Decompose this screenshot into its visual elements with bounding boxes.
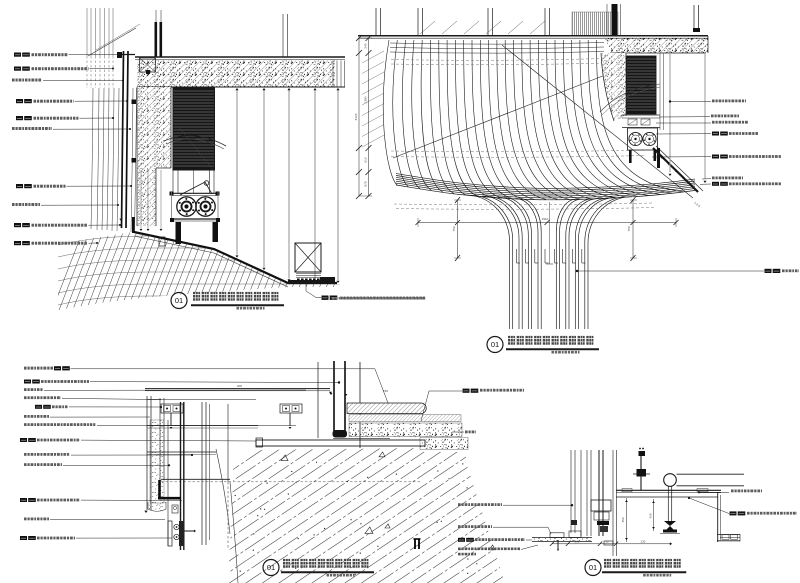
svg-text:3122: 3122 <box>354 113 358 120</box>
svg-text:150: 150 <box>383 389 388 393</box>
svg-text:750: 750 <box>627 226 631 231</box>
svg-text:240: 240 <box>364 43 368 48</box>
svg-text:1510: 1510 <box>542 217 549 221</box>
svg-text:1380: 1380 <box>364 96 368 103</box>
svg-text:200: 200 <box>237 384 242 388</box>
svg-text:01: 01 <box>589 563 597 572</box>
svg-text:01: 01 <box>267 563 275 572</box>
svg-text:575: 575 <box>364 181 368 186</box>
svg-text:200: 200 <box>575 540 580 544</box>
svg-text:230: 230 <box>641 540 646 544</box>
svg-text:450: 450 <box>621 517 625 522</box>
svg-text:750: 750 <box>452 226 456 231</box>
svg-text:610: 610 <box>364 157 368 162</box>
svg-text:50: 50 <box>605 540 609 544</box>
svg-text:430: 430 <box>649 513 653 518</box>
svg-text:01: 01 <box>491 340 499 349</box>
svg-text:01: 01 <box>175 296 183 305</box>
